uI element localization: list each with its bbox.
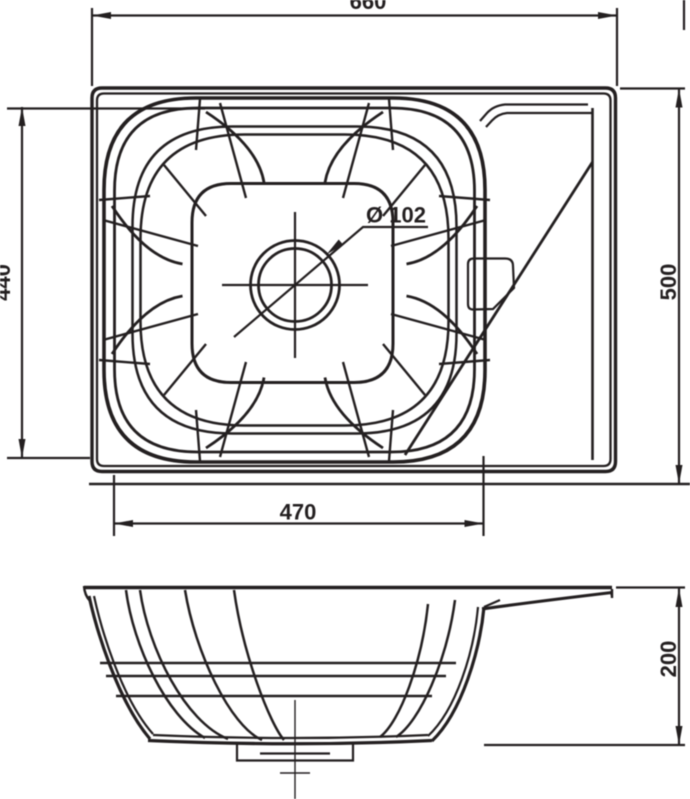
svg-text:200: 200 <box>656 641 681 678</box>
svg-text:470: 470 <box>280 500 317 525</box>
svg-text:Ø 102: Ø 102 <box>366 203 426 228</box>
svg-text:500: 500 <box>656 264 681 301</box>
svg-text:440: 440 <box>0 264 15 301</box>
svg-text:660: 660 <box>350 0 387 14</box>
